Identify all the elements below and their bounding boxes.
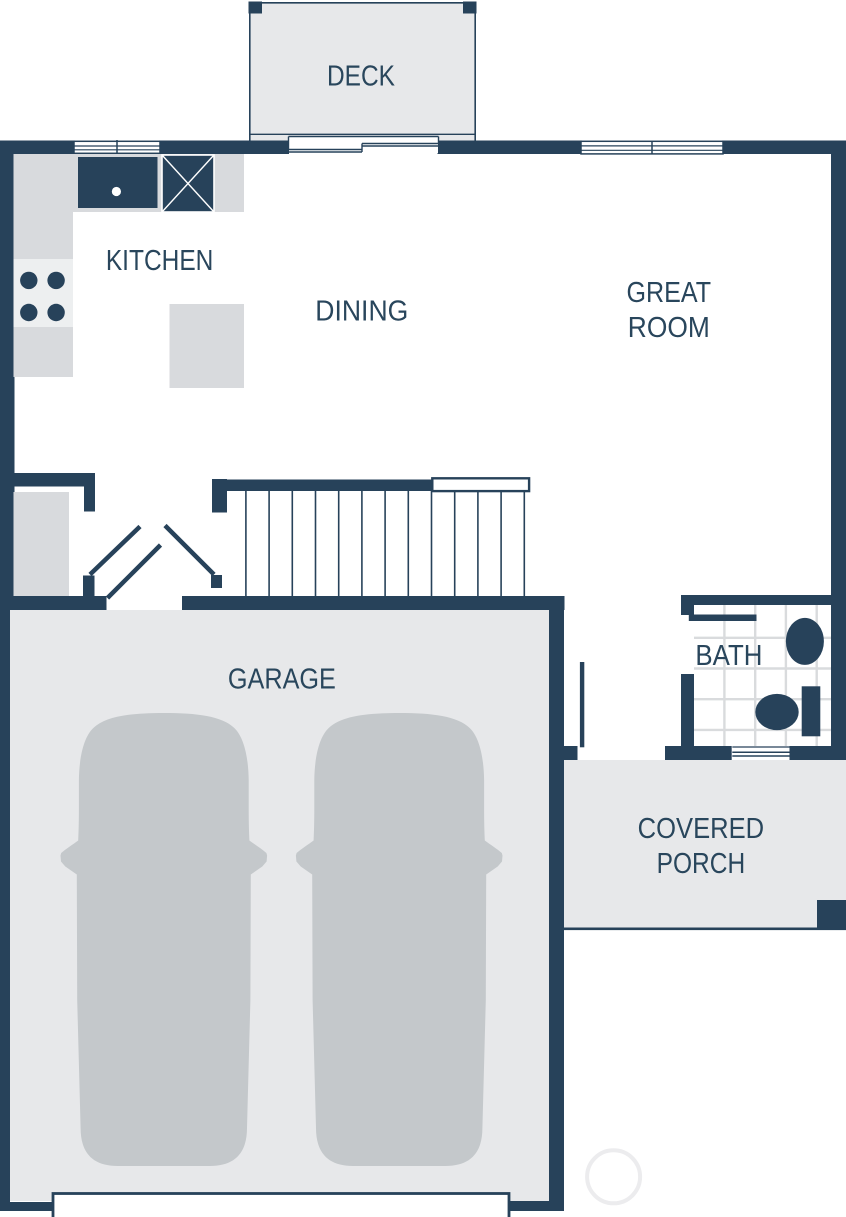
svg-text:BATH: BATH: [695, 640, 762, 672]
svg-text:COVERED: COVERED: [638, 813, 765, 845]
svg-text:ROOM: ROOM: [628, 312, 710, 344]
svg-text:KITCHEN: KITCHEN: [106, 245, 214, 277]
svg-text:DECK: DECK: [327, 61, 396, 93]
svg-text:GREAT: GREAT: [627, 277, 712, 309]
svg-text:PORCH: PORCH: [657, 848, 746, 880]
svg-text:DINING: DINING: [315, 296, 408, 328]
svg-text:GARAGE: GARAGE: [228, 664, 336, 696]
